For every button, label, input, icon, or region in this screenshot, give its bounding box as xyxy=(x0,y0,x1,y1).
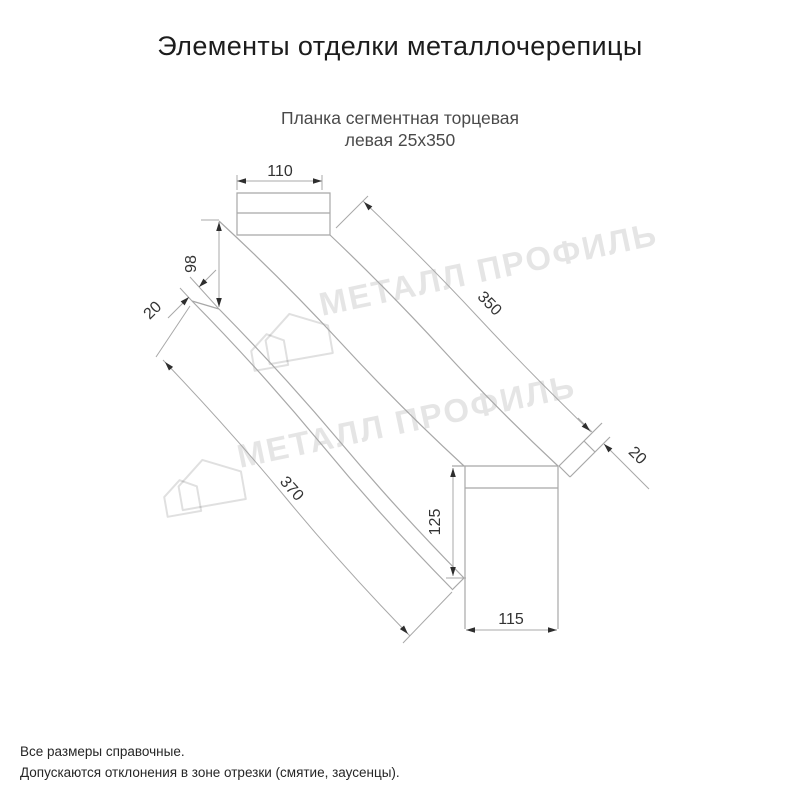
footer-notes: Все размеры справочные. Допускаются откл… xyxy=(20,741,400,783)
dim-top-width-label: 110 xyxy=(267,163,293,180)
watermark-upper: МЕТАЛЛ ПРОФИЛЬ xyxy=(246,215,661,371)
dim-bottom-length-label: 370 xyxy=(276,473,307,504)
dim-end-height-label: 125 xyxy=(427,509,444,536)
dim-left-fold-label: 20 xyxy=(141,298,166,323)
near-end-section-outline xyxy=(237,193,330,235)
technical-drawing: МЕТАЛЛ ПРОФИЛЬ МЕТАЛЛ ПРОФИЛЬ xyxy=(0,0,800,800)
metall-profil-logo-icon xyxy=(246,308,333,371)
far-end-fold-tab xyxy=(559,423,610,477)
dim-370-line xyxy=(156,306,452,643)
footer-note-2: Допускаются отклонения в зоне отрезки (с… xyxy=(20,762,400,783)
metall-profil-logo-icon xyxy=(159,454,246,517)
dim-left-height-label: 98 xyxy=(183,255,200,273)
footer-note-1: Все размеры справочные. xyxy=(20,741,400,762)
dim-end-fold-label: 20 xyxy=(625,443,650,468)
dim-125-line xyxy=(446,468,466,578)
bottom-fold-far-cut xyxy=(452,578,464,590)
bottom-fold-outer-edge xyxy=(192,301,452,589)
dim-20-left-line xyxy=(168,270,219,318)
dim-top-length-label: 350 xyxy=(474,288,505,319)
dim-end-width-label: 115 xyxy=(498,611,524,628)
catalog-figure: Элементы отделки металлочерепицы Планка … xyxy=(0,0,800,800)
watermark-lower: МЕТАЛЛ ПРОФИЛЬ xyxy=(159,367,579,517)
far-end-section-outline xyxy=(452,466,558,629)
dim-98-line xyxy=(201,220,219,307)
watermark-text: МЕТАЛЛ ПРОФИЛЬ xyxy=(234,367,579,475)
